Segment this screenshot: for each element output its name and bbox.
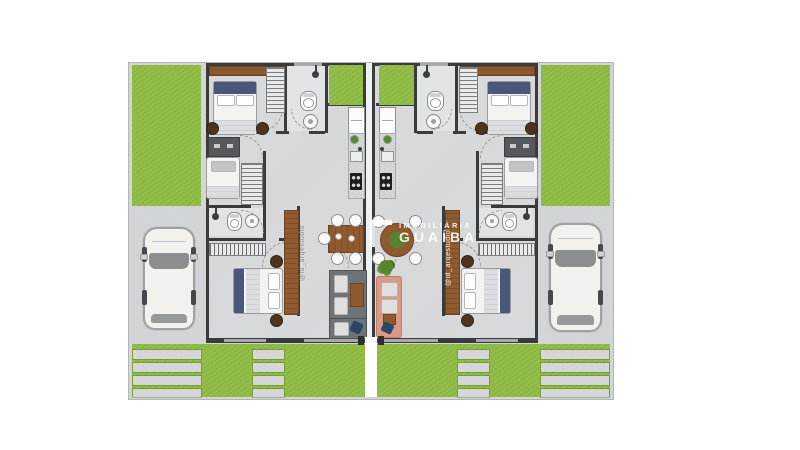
hanger-rack-icon: [481, 163, 503, 205]
chair: [331, 252, 344, 265]
walkway-paver: [253, 350, 284, 359]
driveway-paver: [541, 376, 609, 385]
dresser: [208, 137, 240, 157]
car-icon: [143, 227, 195, 330]
stove-icon: [380, 173, 392, 190]
floor-plan-canvas: @id_arqestudio @id_arqestudio IMOBILIÁRI…: [0, 0, 800, 450]
shower-arm: [526, 208, 528, 215]
hall-wardrobe-left: [284, 210, 299, 315]
brand-name-line2: GUAÍBA: [399, 230, 478, 245]
sofa-salmon-right: [376, 276, 402, 338]
nightstand: [461, 314, 474, 327]
wall: [325, 63, 328, 133]
sink-icon: [245, 214, 259, 228]
wall: [206, 238, 266, 241]
toilet-icon: [427, 91, 444, 111]
rear-window-right: [420, 63, 448, 66]
watermark: IMOBILIÁRIA GUAÍBA: [370, 220, 478, 247]
lot-divider-strip: [365, 337, 377, 397]
shower-arm: [215, 208, 217, 215]
toilet-icon: [227, 212, 242, 231]
shower-icon: [312, 71, 319, 78]
single-bed-right: [504, 157, 538, 199]
side-wall-left: [206, 63, 209, 343]
brand-logo-icon: [370, 220, 392, 247]
nightstand: [256, 122, 269, 135]
wall: [476, 151, 479, 208]
party-wall-right: [372, 63, 375, 340]
car-icon: [549, 223, 602, 332]
nightstand: [270, 314, 283, 327]
wall: [476, 238, 536, 241]
driveway-paver: [133, 376, 201, 385]
fridge-icon: [348, 107, 365, 135]
chair: [318, 232, 331, 245]
single-bed-left: [206, 157, 240, 199]
wall: [414, 63, 417, 133]
nightstand: [461, 255, 474, 268]
driveway-paver: [541, 363, 609, 372]
front-window-bedroom-left: [224, 339, 266, 342]
wall: [417, 131, 433, 134]
plant-icon: [379, 260, 393, 274]
chair: [349, 252, 362, 265]
stove-icon: [350, 173, 362, 190]
tableware: [335, 233, 342, 240]
toilet-icon: [502, 212, 517, 231]
sink-icon: [485, 214, 499, 228]
walkway-paver: [458, 363, 489, 372]
shower-arm: [315, 65, 317, 72]
sink-icon: [303, 114, 318, 129]
fridge-icon: [379, 107, 396, 135]
wall: [491, 205, 536, 208]
side-wall-right: [535, 63, 538, 343]
sink-icon: [350, 151, 363, 162]
chair: [331, 214, 344, 227]
hanger-rack-icon: [241, 163, 263, 205]
hanger-rack-icon: [266, 67, 285, 113]
rear-lawn-right: [541, 65, 610, 206]
front-glass-door-right: [383, 339, 438, 342]
hanger-rack-icon: [459, 67, 478, 113]
dining-table-left: [328, 225, 364, 253]
shower-icon: [423, 71, 430, 78]
plant-icon: [351, 136, 358, 143]
closet-strip: [478, 243, 535, 256]
property-plot: @id_arqestudio @id_arqestudio IMOBILIÁRI…: [128, 62, 614, 400]
wall: [263, 151, 266, 208]
rear-lawn-left: [132, 65, 201, 206]
nightstand: [206, 122, 219, 135]
driveway-paver: [133, 363, 201, 372]
closet-strip: [209, 243, 266, 256]
tableware: [348, 235, 355, 242]
walkway-paver: [458, 389, 489, 397]
wall: [455, 63, 458, 133]
sink-icon: [426, 114, 441, 129]
nightstand: [525, 122, 538, 135]
service-yard-right: [379, 65, 414, 105]
chair: [349, 214, 362, 227]
front-glass-door-left: [304, 339, 359, 342]
nightstand: [270, 255, 283, 268]
double-bed-master-left: [213, 81, 257, 135]
service-yard-left: [329, 65, 363, 105]
sink-icon: [381, 151, 394, 162]
rear-window-left: [294, 63, 322, 66]
wall: [276, 131, 289, 134]
sofa-gray-left: [329, 270, 367, 320]
walkway-paver: [458, 350, 489, 359]
dresser: [504, 137, 536, 157]
wall: [309, 131, 325, 134]
double-bed-front-right: [461, 268, 511, 314]
walkway-paver: [253, 363, 284, 372]
walkway-paver: [253, 389, 284, 397]
walkway-paver: [253, 376, 284, 385]
gate-post-left: [358, 336, 364, 345]
walkway-paver: [458, 376, 489, 385]
wall: [206, 205, 251, 208]
gate-post-right: [378, 336, 384, 345]
instagram-handle-left: @id_arqestudio: [299, 203, 311, 303]
toilet-icon: [300, 91, 317, 111]
wall: [263, 208, 266, 238]
driveway-paver: [133, 389, 201, 397]
shower-arm: [426, 65, 428, 72]
nightstand: [475, 122, 488, 135]
front-window-bedroom-right: [476, 339, 518, 342]
driveway-paver: [133, 350, 201, 359]
double-bed-front-left: [233, 268, 283, 314]
chair: [409, 252, 422, 265]
plant-icon: [384, 136, 391, 143]
driveway-paver: [541, 389, 609, 397]
driveway-paver: [541, 350, 609, 359]
